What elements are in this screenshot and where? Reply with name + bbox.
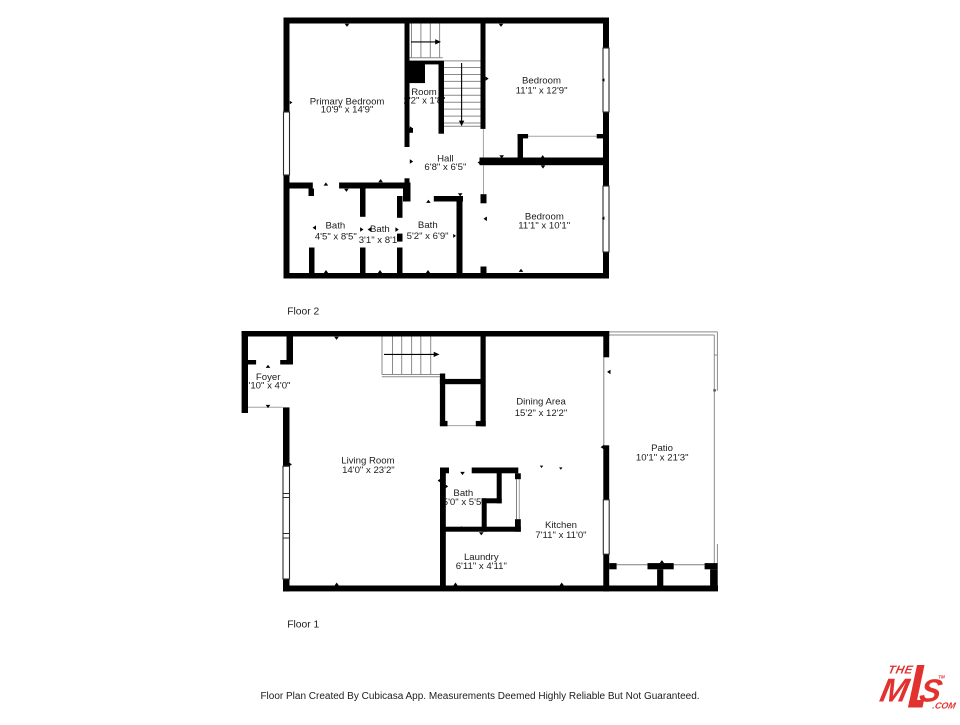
svg-text:14'0" x 23'2": 14'0" x 23'2" xyxy=(342,465,395,476)
svg-text:Floor 1: Floor 1 xyxy=(287,620,319,631)
svg-text:.COM: .COM xyxy=(932,701,958,711)
svg-text:TM: TM xyxy=(938,675,946,680)
svg-text:5'2" x 6'9": 5'2" x 6'9" xyxy=(407,231,449,242)
svg-text:6'8" x 6'5": 6'8" x 6'5" xyxy=(424,162,466,173)
svg-text:Bath: Bath xyxy=(418,220,438,231)
svg-text:Dining Area: Dining Area xyxy=(516,396,566,407)
svg-text:15'2" x 12'2": 15'2" x 12'2" xyxy=(515,408,568,419)
svg-text:5'0" x 5'5": 5'0" x 5'5" xyxy=(443,497,485,508)
svg-text:10'9" x 14'9": 10'9" x 14'9" xyxy=(321,104,374,115)
svg-text:6'11" x 4'11": 6'11" x 4'11" xyxy=(456,561,507,572)
svg-text:Floor Plan Created By Cubicasa: Floor Plan Created By Cubicasa App. Meas… xyxy=(260,691,699,702)
svg-text:Bath: Bath xyxy=(326,221,346,232)
svg-text:Floor 2: Floor 2 xyxy=(287,307,319,318)
svg-text:7'11" x 11'0": 7'11" x 11'0" xyxy=(535,530,586,541)
svg-text:10'1" x 21'3": 10'1" x 21'3" xyxy=(636,453,689,464)
svg-text:Bath: Bath xyxy=(370,224,390,235)
svg-text:11'1" x 12'9": 11'1" x 12'9" xyxy=(516,85,568,96)
svg-text:11'1" x 10'1": 11'1" x 10'1" xyxy=(518,221,570,232)
svg-text:9'10" x 4'0": 9'10" x 4'0" xyxy=(243,381,290,392)
svg-text:4'5" x 8'5": 4'5" x 8'5" xyxy=(315,232,357,243)
svg-text:3'1" x 8'1": 3'1" x 8'1" xyxy=(359,235,401,246)
